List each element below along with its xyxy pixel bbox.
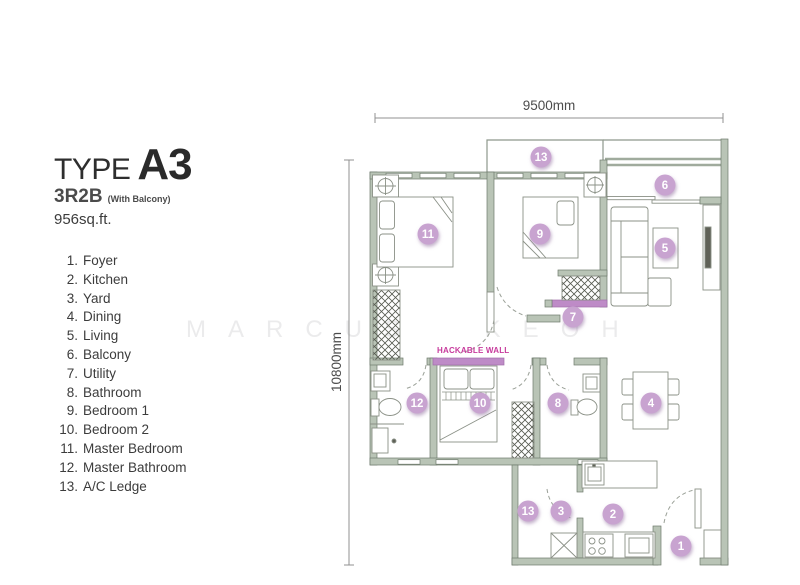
door-leaf <box>695 489 701 528</box>
dimension-width-label: 9500mm <box>523 98 576 113</box>
room-marker-number: 6 <box>662 180 668 192</box>
door-leaf <box>487 292 494 332</box>
bathroom-fixtures <box>571 374 600 415</box>
room-marker-number: 3 <box>558 506 564 518</box>
room-marker-number: 1 <box>678 541 685 553</box>
hackable-wall-label: HACKABLE WALL <box>437 346 509 355</box>
tv-console <box>703 205 720 290</box>
kitchen-stove <box>583 532 655 558</box>
room-marker-number: 13 <box>522 506 535 518</box>
room-marker-number: 11 <box>422 229 435 241</box>
bedroom1-bed <box>523 197 578 258</box>
floorplan-drawing: 9500mm 10800mm <box>0 0 800 585</box>
balcony-railing <box>605 159 721 165</box>
wall-cap <box>545 300 552 307</box>
room-marker-number: 5 <box>662 243 669 255</box>
room-marker-number: 7 <box>570 312 576 324</box>
utility-closet <box>562 276 600 300</box>
room-marker-number: 10 <box>474 398 487 410</box>
floorplan-page: TYPEA3 3R2B (With Balcony) 956sq.ft. 1.F… <box>0 0 800 585</box>
room-marker-number: 2 <box>610 509 616 521</box>
master-bed <box>377 197 453 267</box>
foyer-cabinet <box>704 530 721 558</box>
washing-machine <box>551 533 577 558</box>
room-marker-number: 12 <box>411 398 424 410</box>
balcony-sliding-door <box>607 197 700 204</box>
dimension-height-label: 10800mm <box>329 332 344 392</box>
master-bathroom-fixtures <box>370 371 404 453</box>
room-marker-number: 9 <box>537 229 543 241</box>
master-wardrobe <box>373 290 400 360</box>
room-marker-number: 4 <box>648 398 655 410</box>
bedroom2-wardrobe <box>512 402 534 458</box>
room-marker-number: 8 <box>555 398 562 410</box>
ac-fan-unit <box>373 175 399 197</box>
hackable-walls <box>433 300 607 365</box>
kitchen-counter <box>582 461 657 488</box>
room-marker-number: 13 <box>535 152 548 164</box>
ac-fan-unit <box>584 173 606 197</box>
